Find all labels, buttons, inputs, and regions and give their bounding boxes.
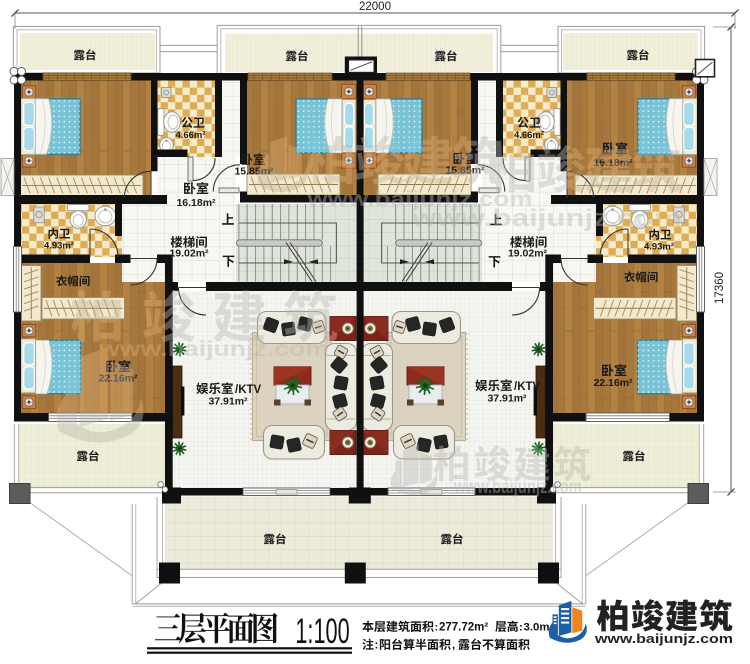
svg-text:37.91m²: 37.91m² — [208, 396, 248, 408]
svg-text:4.66m²: 4.66m² — [175, 130, 205, 141]
svg-text:1:100: 1:100 — [295, 613, 349, 651]
svg-text::: : — [519, 622, 523, 634]
svg-text:16.18m²: 16.18m² — [176, 197, 216, 209]
svg-text:37.91m²: 37.91m² — [487, 393, 527, 405]
svg-text:www.baijunjz.com: www.baijunjz.com — [594, 632, 733, 646]
svg-text::: : — [375, 640, 379, 652]
svg-text:17360: 17360 — [714, 272, 726, 304]
svg-text:www.baijunjz.com: www.baijunjz.com — [98, 338, 329, 361]
svg-text:22.16m²: 22.16m² — [593, 377, 633, 389]
svg-text::: : — [435, 622, 439, 634]
svg-text:4.93m²: 4.93m² — [644, 242, 674, 253]
svg-text:/KTV: /KTV — [514, 381, 541, 393]
svg-text:/KTV: /KTV — [235, 384, 262, 396]
svg-text:4.93m²: 4.93m² — [44, 241, 74, 252]
svg-text:www.baijunjz.com: www.baijunjz.com — [453, 477, 582, 498]
svg-text:3.0m: 3.0m — [524, 622, 550, 634]
svg-text:19.02m²: 19.02m² — [169, 248, 209, 260]
svg-text:277.72m²: 277.72m² — [439, 622, 488, 634]
svg-text:19.02m²: 19.02m² — [508, 248, 548, 260]
svg-text:www.baijunjz.com: www.baijunjz.com — [411, 205, 682, 232]
svg-text:4.66m²: 4.66m² — [514, 130, 544, 141]
svg-text:,: , — [452, 640, 455, 652]
svg-text:22000: 22000 — [359, 1, 391, 13]
